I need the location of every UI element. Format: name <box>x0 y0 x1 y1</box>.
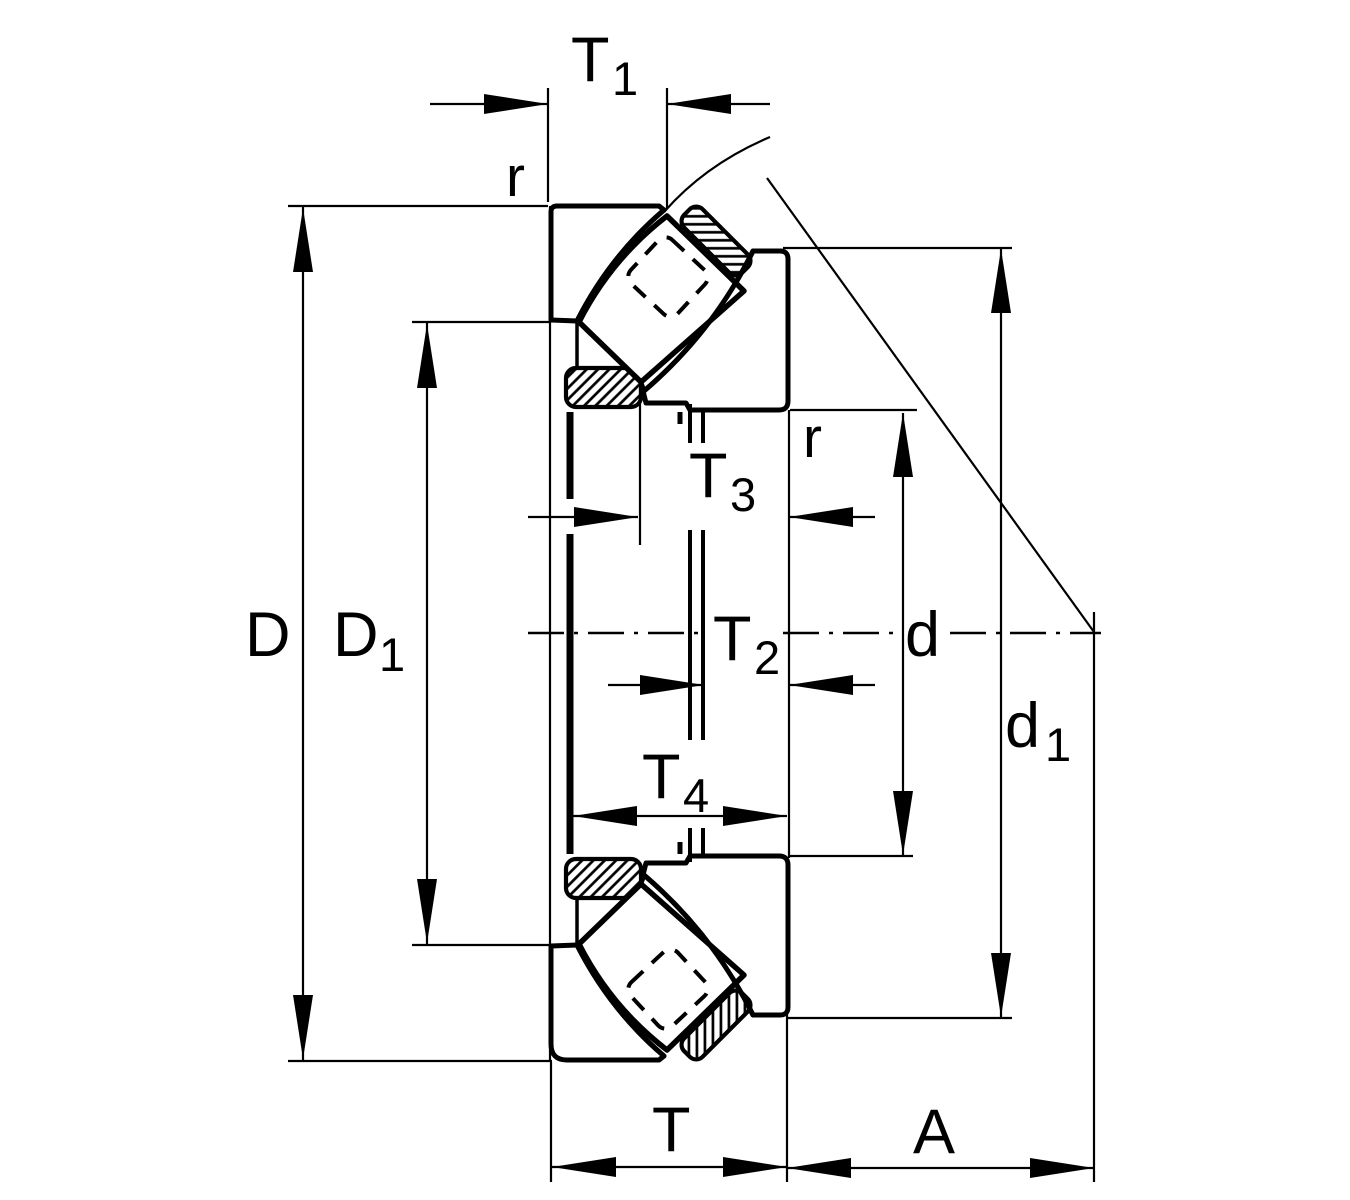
arrow-d-top <box>893 413 913 477</box>
arrow-d1-bottom <box>991 953 1011 1017</box>
label-d: d <box>905 600 940 670</box>
arrow-T2-right <box>789 675 853 695</box>
label-T4-sub: 4 <box>683 769 709 822</box>
arrow-d-bottom <box>893 791 913 855</box>
label-d1-sub: 1 <box>1045 718 1071 771</box>
label-A: A <box>913 1097 955 1167</box>
label-T2: T <box>713 604 751 674</box>
bearing-dimension-drawing: T 1 r r D D 1 T 3 T 2 T 4 d d 1 T A <box>0 0 1350 1200</box>
sphere-arc-extension <box>664 137 770 212</box>
label-T2-sub: 2 <box>754 631 780 684</box>
arrow-D-top <box>293 208 313 272</box>
label-T1: T <box>571 25 609 95</box>
label-T1-sub: 1 <box>612 52 638 105</box>
arrow-T1-right <box>667 94 731 114</box>
drawing-canvas: T 1 r r D D 1 T 3 T 2 T 4 d d 1 T A <box>0 0 1350 1200</box>
label-T: T <box>652 1095 690 1165</box>
label-r-outer: r <box>506 145 525 209</box>
label-D1: D <box>333 600 379 670</box>
arrow-A-right <box>1030 1158 1094 1178</box>
label-T3-sub: 3 <box>730 468 756 521</box>
arrow-T4-right <box>723 806 787 826</box>
arrow-T1-left <box>484 94 548 114</box>
arrow-D-bottom <box>293 995 313 1059</box>
arrow-T-right <box>723 1157 787 1177</box>
arrow-d1-top <box>991 249 1011 313</box>
label-D: D <box>245 600 291 670</box>
label-T3: T <box>689 441 727 511</box>
arrow-A-left <box>787 1158 851 1178</box>
apex-cone-line <box>767 178 1094 632</box>
arrow-T2-left <box>640 675 704 695</box>
arrow-T3-left <box>574 507 638 527</box>
label-d1: d <box>1005 691 1040 761</box>
arrow-D1-bottom <box>417 879 437 943</box>
arrow-T-left <box>552 1157 616 1177</box>
label-D1-sub: 1 <box>379 628 405 681</box>
label-r-inner: r <box>803 406 822 470</box>
arrow-D1-top <box>417 324 437 388</box>
arrow-T4-left <box>573 806 637 826</box>
label-T4: T <box>642 742 680 812</box>
arrow-T3-right <box>789 507 853 527</box>
